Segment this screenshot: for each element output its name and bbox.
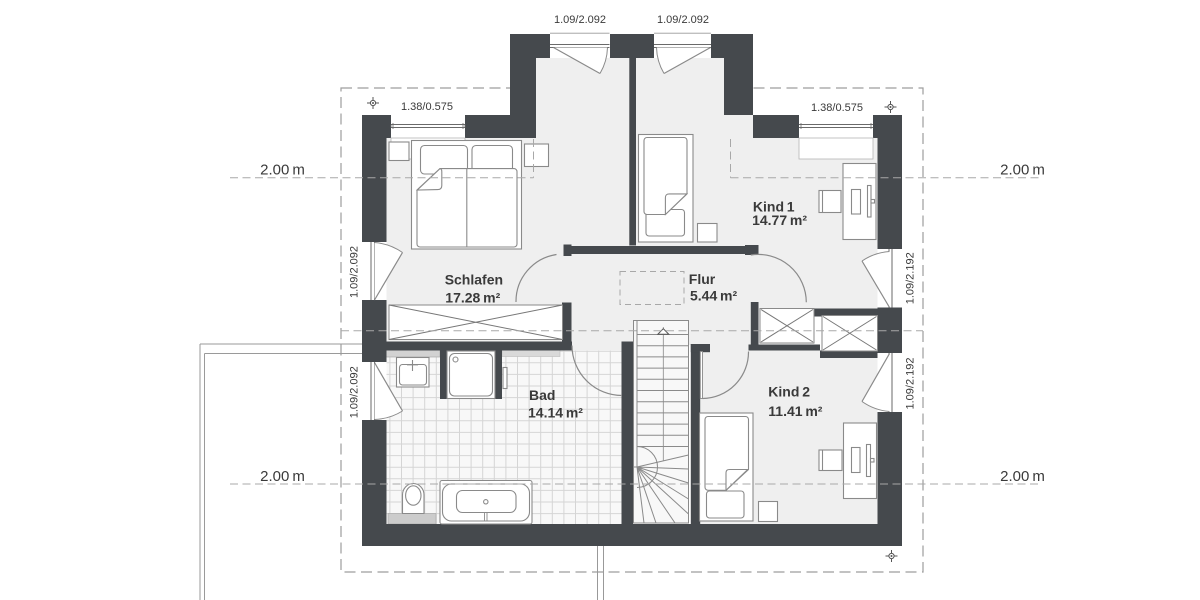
svg-text:1.09/2.192: 1.09/2.192 xyxy=(904,252,916,304)
svg-text:2.00 m: 2.00 m xyxy=(1000,162,1045,179)
svg-text:1.09/2.192: 1.09/2.192 xyxy=(904,358,916,410)
svg-text:Kind 2: Kind 2 xyxy=(768,384,810,400)
svg-text:14.77 m²: 14.77 m² xyxy=(752,212,807,228)
svg-text:1.09/2.092: 1.09/2.092 xyxy=(348,366,360,418)
svg-text:1.38/0.575: 1.38/0.575 xyxy=(401,101,453,113)
svg-text:2.00 m: 2.00 m xyxy=(260,468,305,485)
svg-text:5.44 m²: 5.44 m² xyxy=(690,288,737,304)
svg-text:1.38/0.575: 1.38/0.575 xyxy=(811,102,863,114)
svg-text:1.09/2.092: 1.09/2.092 xyxy=(348,246,360,298)
svg-text:14.14 m²: 14.14 m² xyxy=(528,405,583,421)
svg-text:Flur: Flur xyxy=(689,271,716,287)
svg-text:Schlafen: Schlafen xyxy=(445,271,503,287)
svg-text:1.09/2.092: 1.09/2.092 xyxy=(554,14,606,26)
svg-text:11.41 m²: 11.41 m² xyxy=(768,403,823,419)
svg-text:2.00 m: 2.00 m xyxy=(260,162,305,179)
svg-text:Bad: Bad xyxy=(529,387,555,403)
svg-text:1.09/2.092: 1.09/2.092 xyxy=(657,14,709,26)
svg-text:17.28 m²: 17.28 m² xyxy=(445,289,500,305)
svg-text:2.00 m: 2.00 m xyxy=(1000,468,1045,485)
